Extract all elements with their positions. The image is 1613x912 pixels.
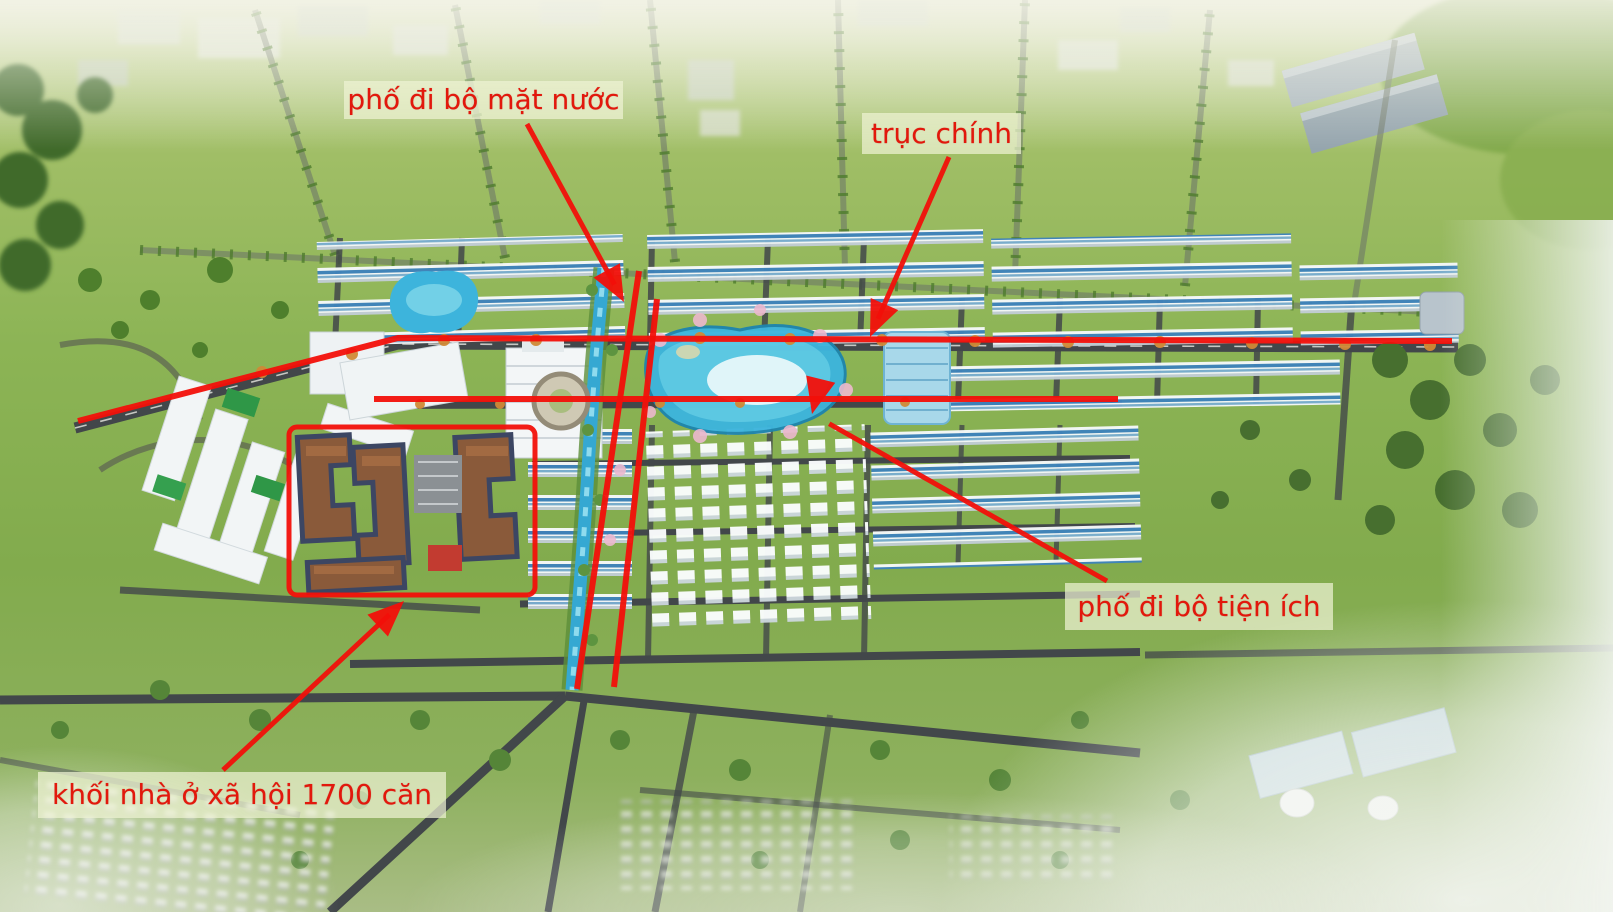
label-main-axis: trục chính	[862, 113, 1021, 154]
arrowhead-amenity-walking-street	[806, 375, 835, 414]
waterfront-street-west	[577, 271, 639, 689]
masterplan-screenshot: phố đi bộ mặt nước trục chính phố đi bộ …	[0, 0, 1613, 912]
label-amenity-walking-street: phố đi bộ tiện ích	[1065, 583, 1333, 630]
waterfront-street-east	[614, 299, 657, 687]
label-social-housing-block: khối nhà ở xã hội 1700 căn	[38, 772, 446, 818]
pointer-main-axis	[878, 157, 949, 319]
main-axis-road	[78, 338, 1452, 421]
social-housing-outline	[289, 427, 535, 595]
label-waterfront-walking-street: phố đi bộ mặt nước	[344, 81, 623, 119]
pointer-amenity-walking-street	[829, 424, 1107, 581]
pointer-social-housing-block	[223, 615, 390, 770]
pointer-waterfront-walking-street	[527, 124, 615, 285]
